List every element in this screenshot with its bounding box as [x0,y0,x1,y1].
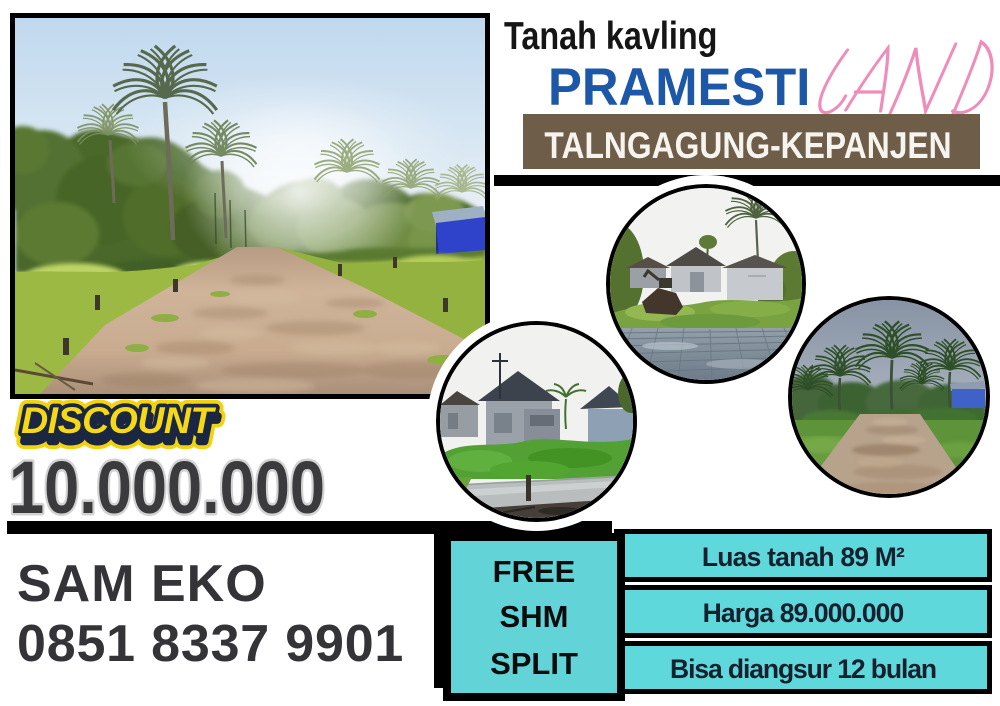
svg-text:DISCOUNT: DISCOUNT [21,399,216,441]
svg-text:10.000.000: 10.000.000 [9,446,325,529]
